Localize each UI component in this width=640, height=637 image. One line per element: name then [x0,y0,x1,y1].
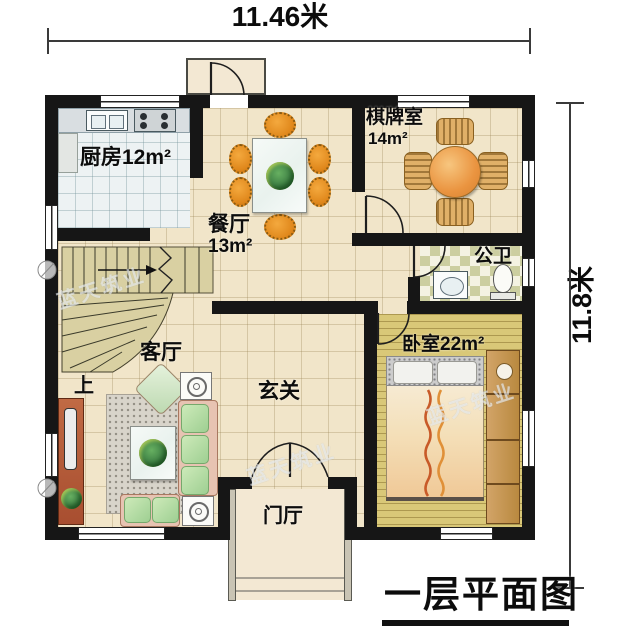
sofa-right-section [178,400,218,496]
wall-segment [45,228,150,241]
wall-segment [45,250,58,433]
dimension-height-label: 11.8米 [568,250,598,360]
window [440,527,493,540]
window [45,205,58,250]
wall-segment [218,477,230,540]
chess-chair [404,152,432,190]
end-table [180,372,212,400]
wall-segment [180,95,210,108]
window [522,258,535,287]
wall-segment [408,277,420,303]
wall-segment [522,188,535,258]
dimension-tick [529,28,531,54]
dimension-width-label: 11.46米 [180,2,380,31]
wall-segment [352,108,365,192]
room-label-dining: 餐厅 [208,214,250,236]
window [100,95,180,108]
wall-segment [407,301,535,314]
toilet [490,292,516,300]
wall-segment [345,477,357,540]
dimension-tick [556,102,584,104]
back-porch [186,58,266,95]
wall-segment [190,108,203,178]
floorplan-page: 厨房12m² 餐厅 13m² 棋牌室 14m² 公卫 卧室22m² 客厅 玄关 … [0,0,640,637]
window [522,410,535,467]
plan-title: 一层平面图 [384,576,579,615]
dining-chair [229,144,252,174]
room-area-dining: 13m² [208,237,252,257]
dining-chair [308,177,331,207]
wall-segment [522,95,535,160]
kitchen-fridge [58,133,78,173]
dining-table-plant [266,162,294,190]
wall-segment [45,95,58,205]
bed-pillows [386,356,484,386]
sofa-bottom-section [120,494,180,527]
room-label-bedroom: 卧室22m² [402,335,484,355]
wall-segment [212,301,378,314]
kitchen-sink [86,110,128,131]
wall-segment [352,233,535,246]
room-label-chess: 棋牌室 [366,108,423,128]
chess-chair [436,198,474,226]
chess-chair [478,152,508,190]
window [78,527,165,540]
foyer-step-line [236,590,344,592]
room-label-bath: 公卫 [474,247,512,267]
room-area-chess: 14m² [368,130,408,148]
chess-table [429,146,481,198]
window [45,433,58,477]
dimension-line-top [48,40,530,42]
wall-segment [364,301,377,540]
wardrobe-dresser [486,350,520,524]
plan-title-underline [382,620,569,626]
foyer-step-line [236,577,344,579]
kitchen-stove [134,109,176,132]
chess-chair [436,118,474,145]
dimension-line-right [569,103,571,588]
window [522,160,535,188]
bathroom-sink [433,271,468,299]
room-label-foyer: 门厅 [263,506,303,527]
dining-chair [229,177,252,207]
toilet-bowl [493,264,513,293]
room-label-living: 客厅 [140,342,182,364]
stairs-up-label: 上 [74,376,94,397]
floor-plant [61,488,82,509]
coffee-table-plant [139,439,167,467]
room-label-hall: 玄关 [258,381,300,403]
room-label-kitchen: 厨房12m² [80,147,171,169]
dining-chair [308,144,331,174]
tv [64,408,77,470]
dimension-tick [47,28,49,54]
dining-chair [264,214,296,240]
end-table [182,496,214,526]
bed-footboard [386,497,484,501]
dining-chair [264,112,296,138]
